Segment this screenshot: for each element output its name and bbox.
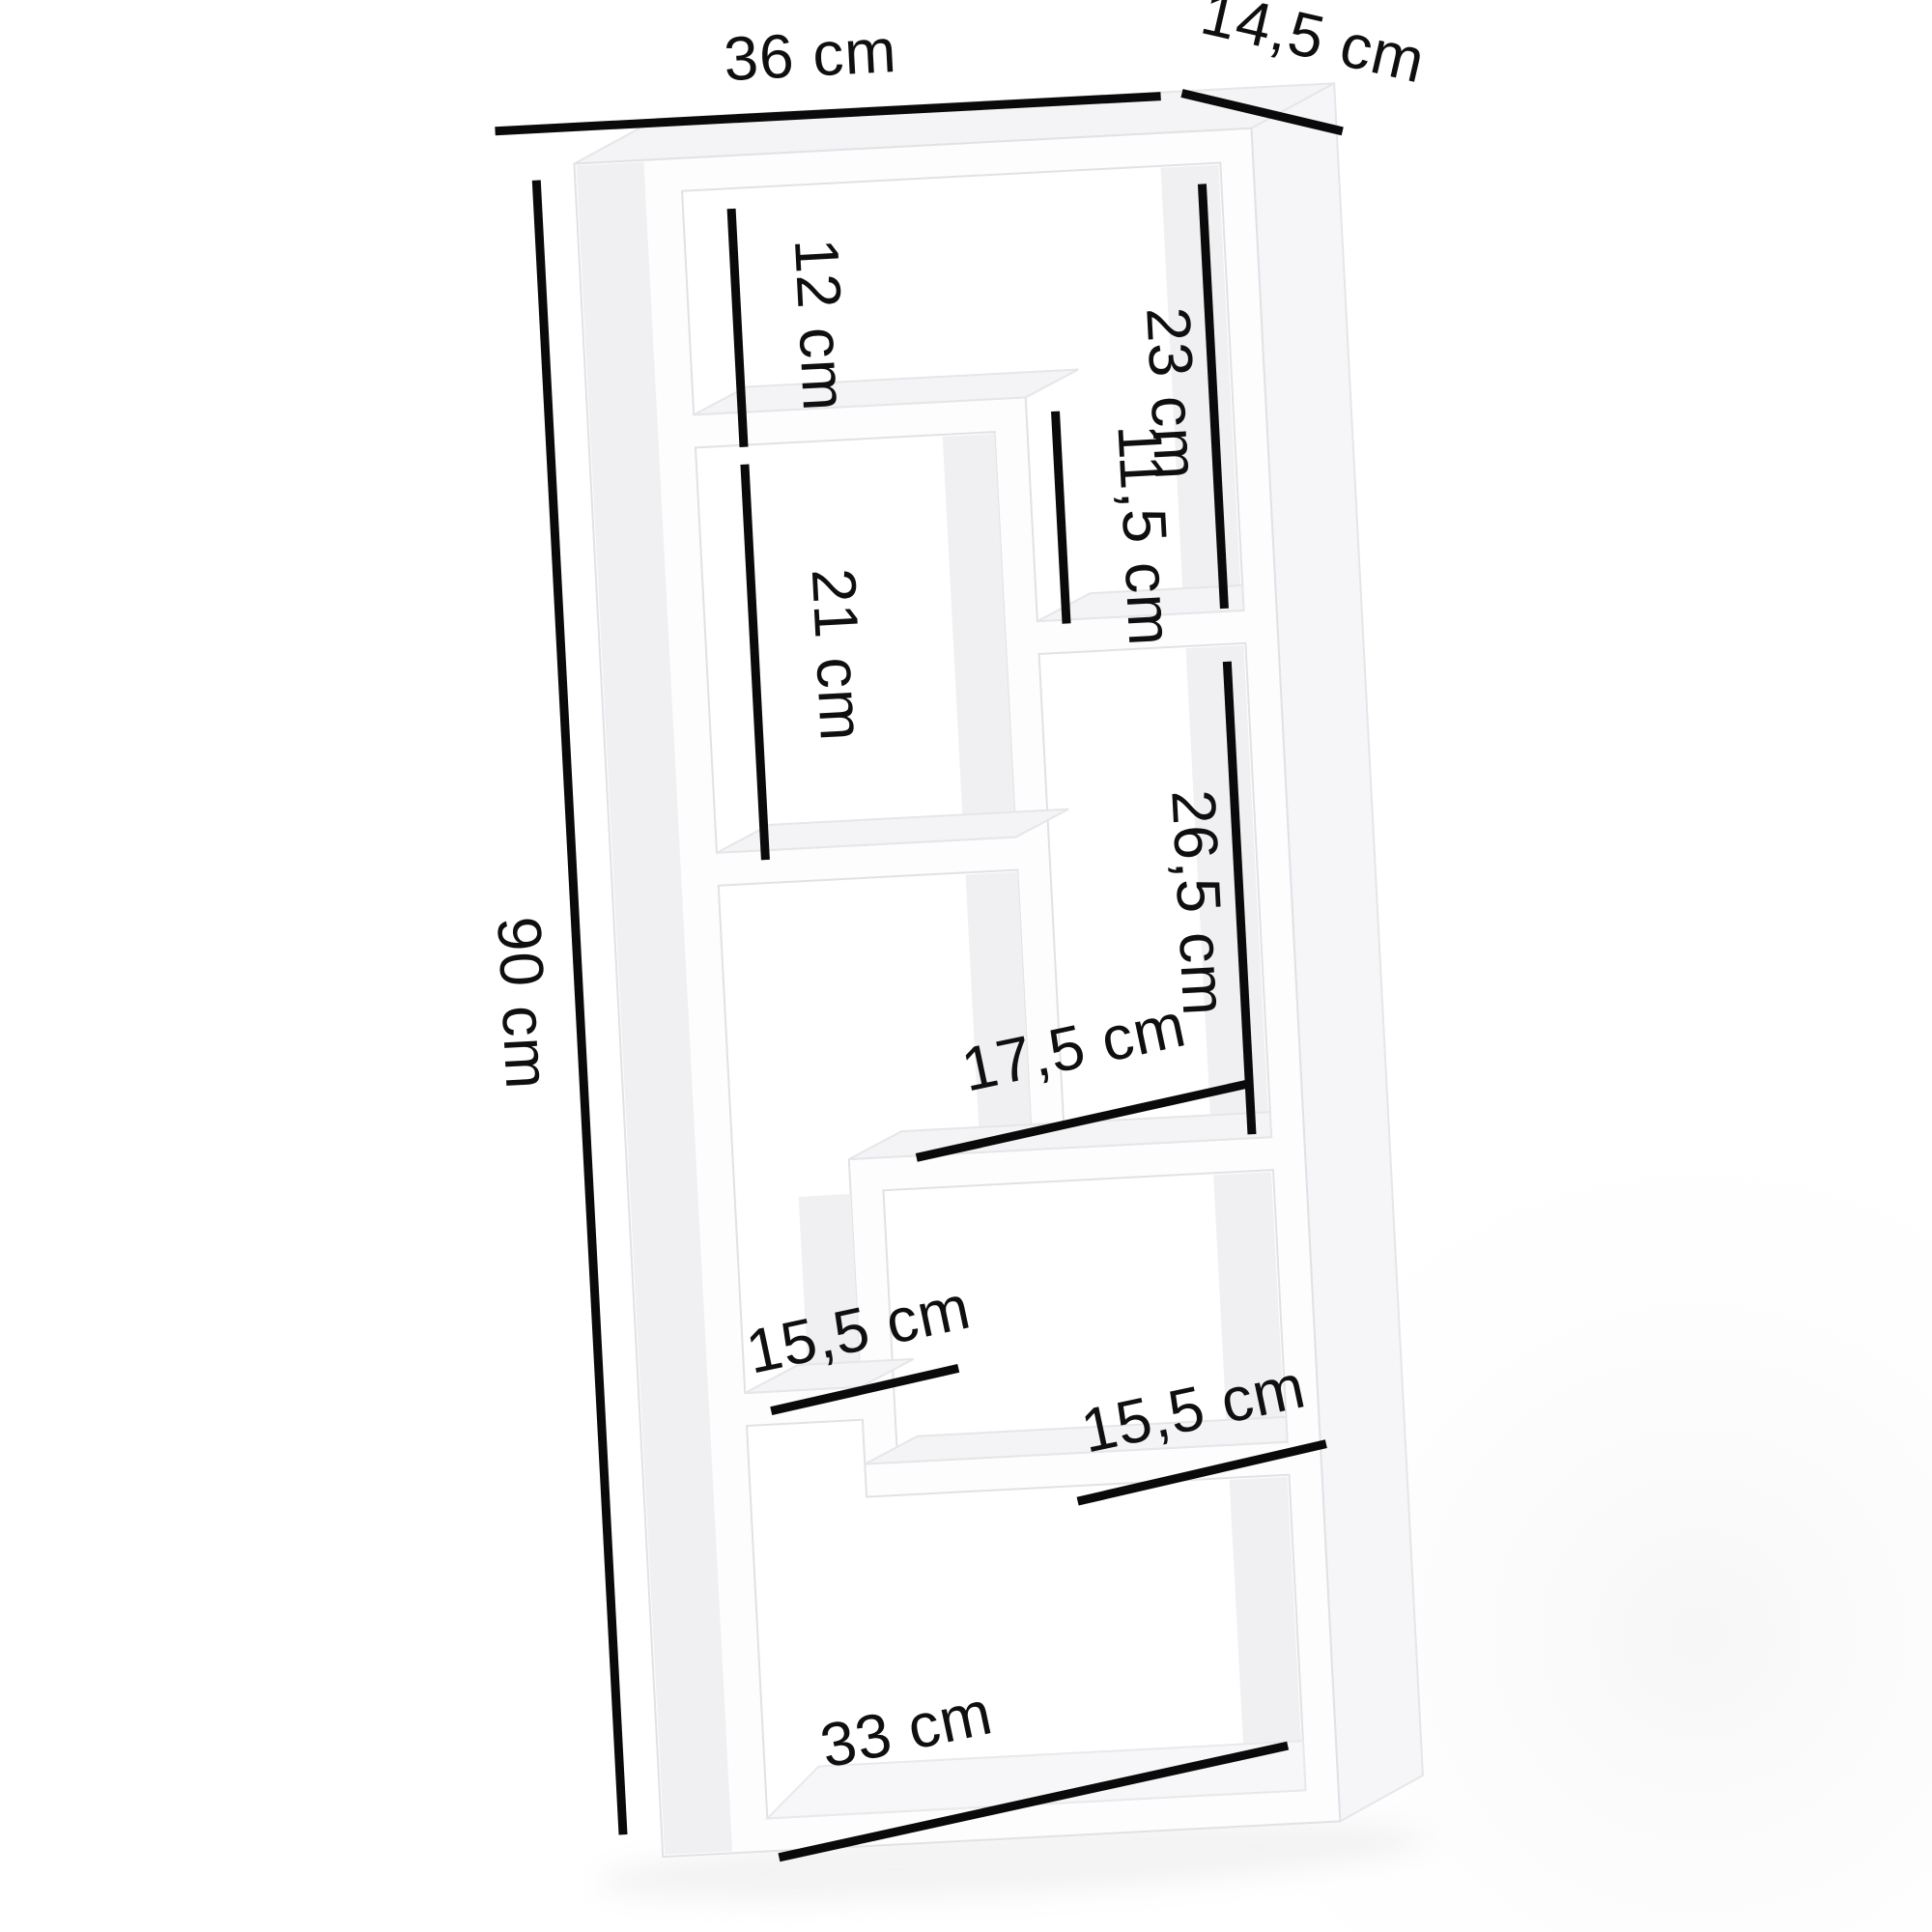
dimension-label-width-36: 36 cm [722,15,898,94]
dimension-diagram-canvas: 36 cm 14,5 cm 90 cm 12 cm 23 cm 11,5 cm … [0,0,1932,1932]
dimension-label-box-12: 12 cm [781,237,860,413]
dimension-label-box-21: 21 cm [799,567,877,744]
shelf-dimension-diagram: 36 cm 14,5 cm 90 cm 12 cm 23 cm 11,5 cm … [0,0,1932,1932]
dimension-label-height-90: 90 cm [484,915,562,1092]
dimension-label-box-265: 26,5 cm [1158,788,1239,1018]
dimension-label-step-115: 11,5 cm [1104,422,1185,647]
